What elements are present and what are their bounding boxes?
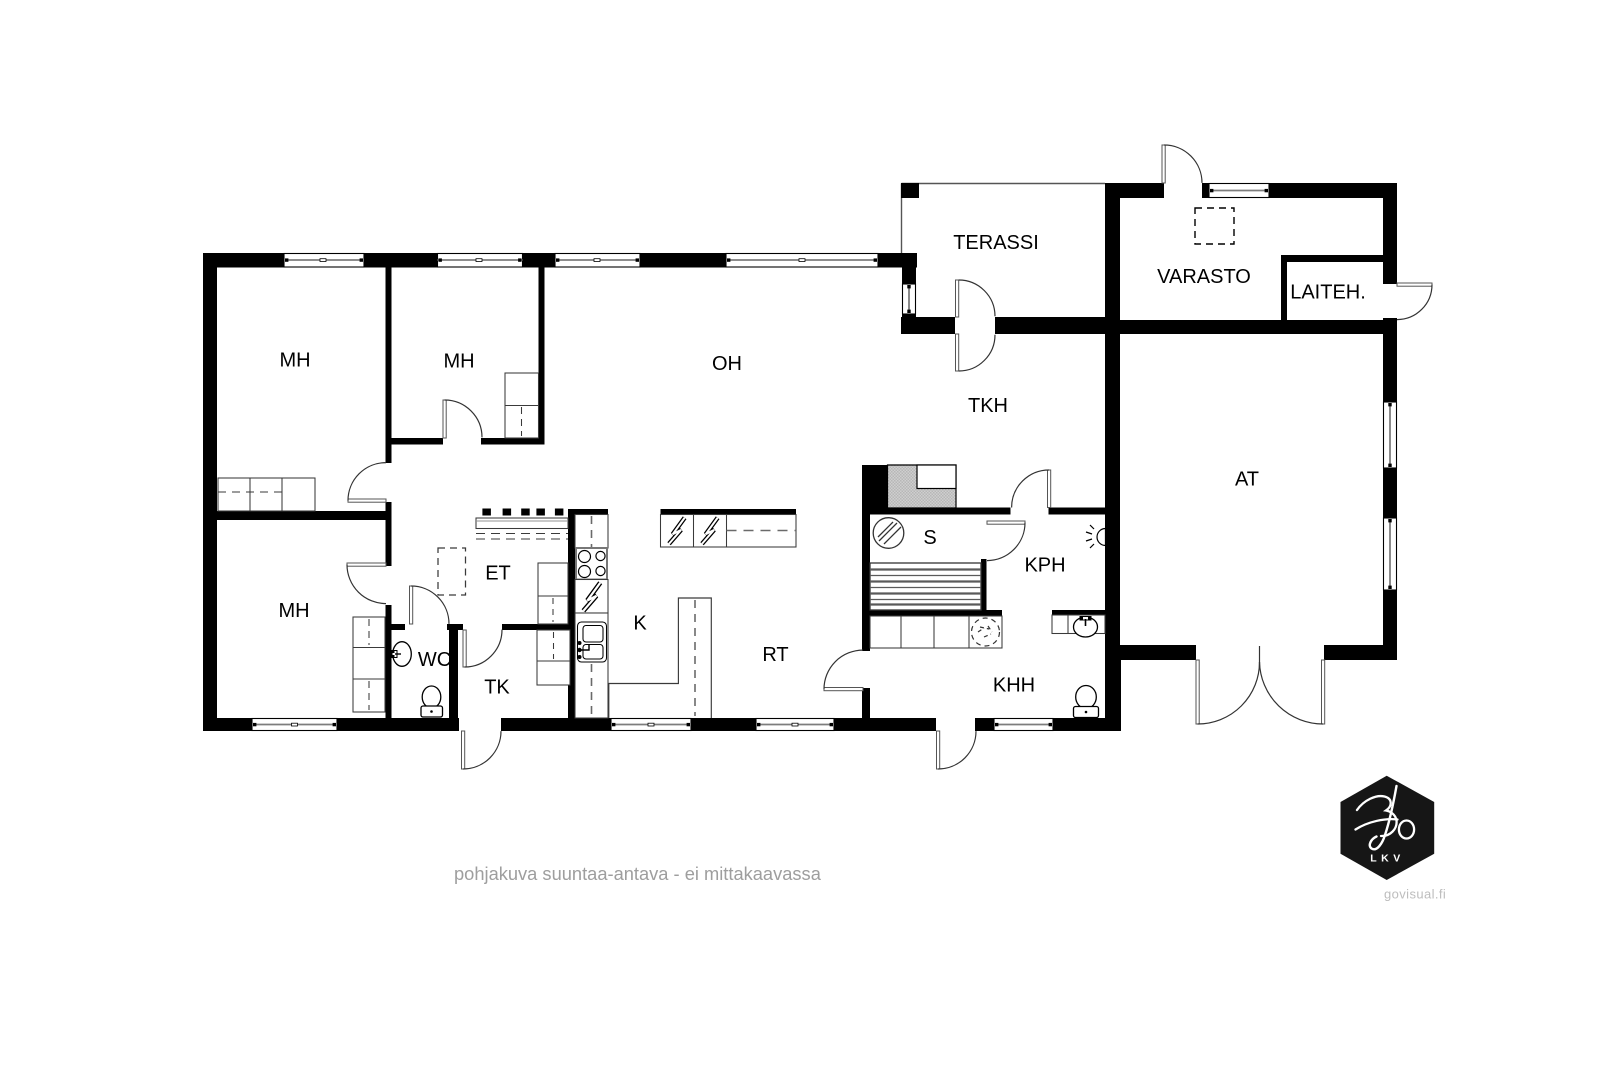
svg-text:OH: OH	[712, 353, 742, 375]
svg-text:KPH: KPH	[1024, 555, 1065, 577]
svg-text:MH: MH	[443, 351, 474, 373]
svg-text:WC: WC	[418, 649, 451, 671]
svg-text:KHH: KHH	[993, 675, 1035, 697]
svg-text:TKH: TKH	[968, 395, 1008, 417]
svg-text:RT: RT	[762, 644, 788, 666]
svg-text:TERASSI: TERASSI	[953, 232, 1039, 254]
svg-text:S: S	[923, 527, 936, 549]
svg-text:AT: AT	[1235, 469, 1259, 491]
svg-text:LKV: LKV	[1370, 853, 1405, 865]
svg-text:K: K	[633, 613, 647, 635]
svg-text:LAITEH.: LAITEH.	[1290, 282, 1366, 304]
svg-text:TK: TK	[484, 677, 510, 699]
svg-text:VARASTO: VARASTO	[1157, 266, 1251, 288]
svg-text:govisual.fi: govisual.fi	[1384, 887, 1446, 902]
svg-text:ET: ET	[485, 563, 511, 585]
svg-text:MH: MH	[279, 350, 310, 372]
svg-text:MH: MH	[278, 600, 309, 622]
svg-text:pohjakuva suuntaa-antava - ei: pohjakuva suuntaa-antava - ei mittakaava…	[454, 863, 822, 884]
